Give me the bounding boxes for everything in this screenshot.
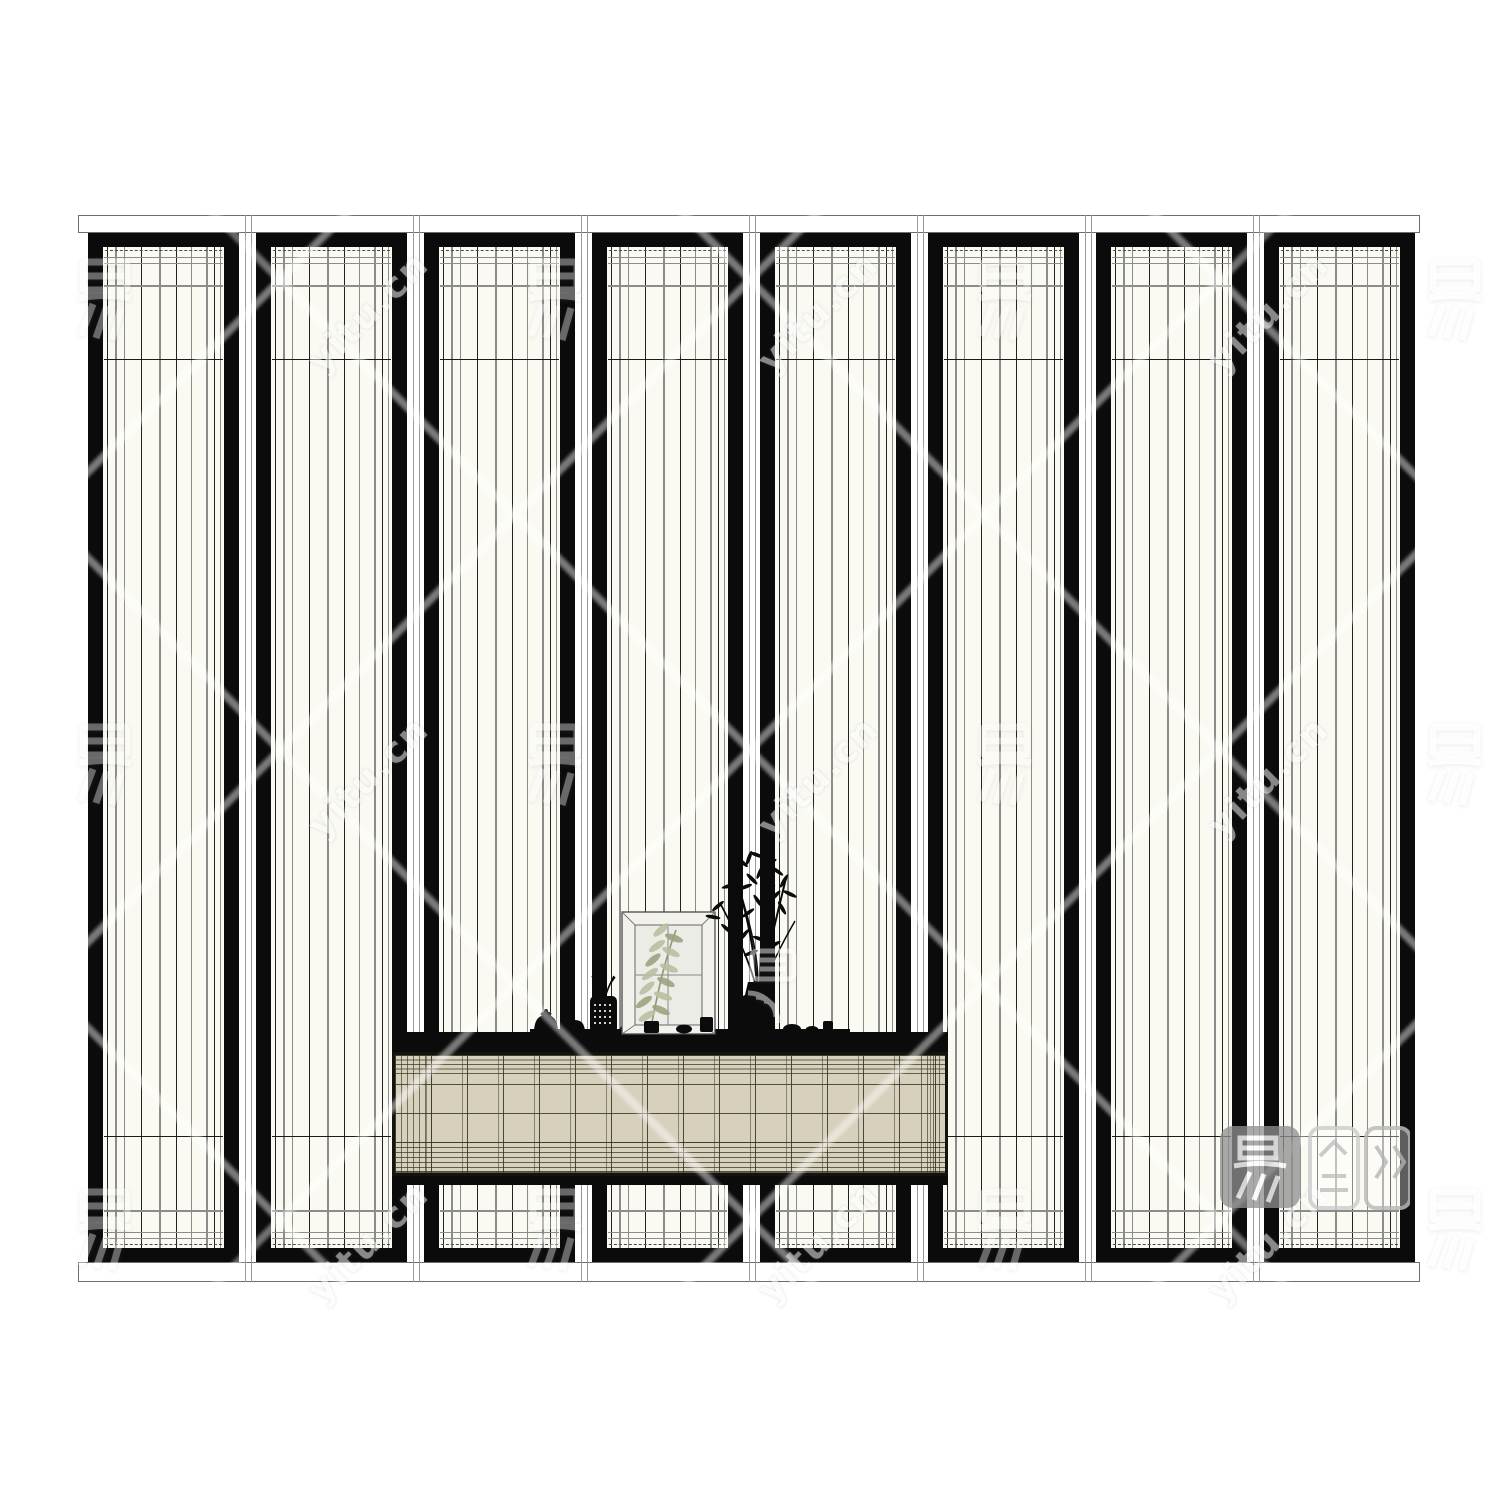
cup — [644, 1021, 659, 1033]
round-pot — [534, 1015, 558, 1033]
slat-line — [141, 247, 142, 1248]
panel-detail-line — [440, 263, 559, 264]
slat-line — [955, 247, 957, 1248]
panel-detail-line — [104, 359, 223, 360]
panel-detail-line — [272, 285, 391, 287]
grid-left-weave — [395, 1055, 437, 1173]
gap-wall-line — [251, 215, 252, 1282]
slat-line — [1123, 247, 1125, 1248]
grid-bottom-weave — [395, 1141, 945, 1173]
panel-detail-line — [272, 1238, 391, 1239]
panel-dashed-line — [777, 1244, 894, 1245]
slat-line — [1300, 247, 1301, 1248]
small-pot — [565, 1020, 585, 1033]
pot-knob — [544, 1009, 548, 1013]
panel-detail-line — [944, 257, 1063, 258]
panel-detail-line — [272, 1136, 391, 1137]
yitu-logo-watermark — [1218, 1122, 1410, 1214]
console-base-strip — [392, 1176, 948, 1185]
slat-line — [374, 247, 376, 1248]
slat-line — [981, 247, 982, 1248]
panel-detail-line — [608, 285, 727, 287]
slat-line — [1060, 247, 1061, 1248]
panel-dashed-line — [273, 1244, 390, 1245]
wall-panel — [88, 233, 239, 1262]
panel-detail-line — [944, 263, 1063, 264]
panel-detail-line — [104, 1210, 223, 1212]
panel-detail-line — [944, 1238, 1063, 1239]
small-bowl — [676, 1025, 692, 1034]
branch-vase — [705, 849, 797, 1034]
cup — [700, 1017, 713, 1032]
panel-detail-line — [608, 263, 727, 264]
panel-detail-line — [1280, 359, 1399, 360]
panel-detail-line — [104, 285, 223, 287]
tall-vase — [737, 982, 773, 1034]
panel-detail-line — [944, 1136, 1063, 1137]
panel-detail-line — [440, 257, 559, 258]
panel-dashed-line — [105, 1244, 222, 1245]
panel-dashed-line — [273, 250, 390, 251]
slat-line — [1115, 247, 1116, 1248]
panel-detail-line — [104, 1232, 223, 1233]
gap-wall-line — [245, 215, 246, 1282]
slat-line — [1184, 247, 1185, 1248]
small-bowl — [783, 1024, 801, 1034]
slat-line — [1016, 247, 1017, 1248]
dotted-vase — [590, 996, 617, 1033]
panel-detail-line — [272, 359, 391, 360]
panel-detail-line — [776, 1232, 895, 1233]
slat-line — [115, 247, 117, 1248]
slat-line — [124, 247, 125, 1248]
panel-dashed-line — [441, 250, 558, 251]
slat-line — [206, 247, 208, 1248]
logo-text: 易图网 — [0, 0, 1, 1]
slat-line — [359, 247, 360, 1248]
grid-top-weave — [395, 1055, 945, 1076]
panel-detail-line — [272, 1232, 391, 1233]
panel-recess — [943, 247, 1064, 1248]
logo-glyph-tu — [1310, 1128, 1358, 1208]
panel-detail-line — [944, 359, 1063, 360]
panel-dashed-line — [777, 250, 894, 251]
slat-line — [1046, 247, 1048, 1248]
grid-right-weave — [921, 1055, 945, 1173]
wall-panel — [256, 233, 407, 1262]
panel-detail-line — [104, 1238, 223, 1239]
slat-line — [159, 247, 161, 1248]
panel-detail-line — [104, 1136, 223, 1137]
panel-detail-line — [440, 1210, 559, 1212]
panel-detail-line — [104, 257, 223, 258]
slat-line — [1228, 247, 1229, 1248]
panel-detail-line — [1112, 1232, 1231, 1233]
panel-detail-line — [776, 285, 895, 287]
panel-recess — [103, 247, 224, 1248]
panel-detail-line — [944, 1232, 1063, 1233]
panel-detail-line — [1112, 257, 1231, 258]
panel-dashed-line — [441, 1244, 558, 1245]
panel-detail-line — [1112, 1238, 1231, 1239]
panel-recess — [1111, 247, 1232, 1248]
gap-wall-line — [1091, 215, 1092, 1282]
panel-recess — [1279, 247, 1400, 1248]
panel-dashed-line — [1113, 250, 1230, 251]
slat-line — [1283, 247, 1284, 1248]
panel-detail-line — [272, 263, 391, 264]
panel-detail-line — [608, 257, 727, 258]
panel-detail-line — [440, 285, 559, 287]
panel-detail-line — [1280, 263, 1399, 264]
panel-detail-line — [440, 1232, 559, 1233]
logo-glyph-wang — [1366, 1128, 1410, 1208]
panel-detail-line — [776, 359, 895, 360]
slat-line — [1335, 247, 1337, 1248]
panel-detail-line — [1112, 1210, 1231, 1212]
slat-line — [1317, 247, 1318, 1248]
slat-line — [1367, 247, 1368, 1248]
slat-line — [1167, 247, 1169, 1248]
slat-line — [999, 247, 1001, 1248]
slat-line — [1382, 247, 1384, 1248]
slat-line — [1352, 247, 1353, 1248]
panel-dashed-line — [945, 250, 1062, 251]
panel-detail-line — [776, 263, 895, 264]
shelf-decor — [380, 848, 960, 1048]
panel-recess — [271, 247, 392, 1248]
slat-line — [220, 247, 221, 1248]
vase-twigs — [592, 974, 615, 998]
slat-line — [388, 247, 389, 1248]
slat-line — [1149, 247, 1150, 1248]
panel-dashed-line — [1281, 1244, 1398, 1245]
console-rattan-grid — [392, 1052, 948, 1176]
panel-dashed-line — [945, 1244, 1062, 1245]
panel-dashed-line — [609, 250, 726, 251]
panel-detail-line — [272, 257, 391, 258]
panel-detail-line — [1112, 359, 1231, 360]
slat-line — [1199, 247, 1200, 1248]
panel-detail-line — [608, 1210, 727, 1212]
elevation-drawing-canvas: yitu.cn yitu.cn yitu.cn yitu.cn yitu.cn — [0, 0, 1500, 1500]
slat-line — [1031, 247, 1032, 1248]
panel-detail-line — [776, 1210, 895, 1212]
panel-detail-line — [608, 359, 727, 360]
panel-dashed-line — [1113, 1244, 1230, 1245]
slat-line — [191, 247, 192, 1248]
slat-line — [1222, 247, 1223, 1248]
panel-detail-line — [776, 1238, 895, 1239]
panel-detail-line — [1280, 257, 1399, 258]
slat-line — [382, 247, 383, 1248]
picture-frame — [622, 912, 715, 1034]
slat-line — [1054, 247, 1055, 1248]
wall-panel — [928, 233, 1079, 1262]
slat-line — [107, 247, 108, 1248]
slat-line — [1132, 247, 1133, 1248]
panel-detail-line — [1280, 1238, 1399, 1239]
yi-glyph-watermark — [1419, 256, 1491, 344]
slat-line — [1291, 247, 1293, 1248]
slat-line — [176, 247, 177, 1248]
panel-detail-line — [1280, 285, 1399, 287]
gap-wall-line — [1085, 215, 1086, 1282]
slat-line — [214, 247, 215, 1248]
slat-line — [964, 247, 965, 1248]
panel-detail-line — [440, 359, 559, 360]
panel-detail-line — [1112, 263, 1231, 264]
slat-line — [1390, 247, 1391, 1248]
slat-line — [309, 247, 310, 1248]
panel-detail-line — [1112, 285, 1231, 287]
panel-detail-line — [608, 1238, 727, 1239]
panel-dashed-line — [1281, 250, 1398, 251]
slat-line — [1396, 247, 1397, 1248]
yi-glyph-watermark — [1419, 1186, 1491, 1274]
panel-detail-line — [776, 257, 895, 258]
yi-glyph-watermark — [1419, 721, 1491, 809]
panel-detail-line — [944, 285, 1063, 287]
slat-line — [344, 247, 345, 1248]
wall-panel — [1264, 233, 1415, 1262]
panel-detail-line — [104, 263, 223, 264]
slat-line — [292, 247, 293, 1248]
slat-line — [283, 247, 285, 1248]
slat-line — [1214, 247, 1216, 1248]
slat-line — [327, 247, 329, 1248]
cup — [823, 1021, 833, 1032]
panel-detail-line — [1280, 1232, 1399, 1233]
wall-panel — [1096, 233, 1247, 1262]
panel-detail-line — [272, 1210, 391, 1212]
panel-detail-line — [1112, 1136, 1231, 1137]
panel-dashed-line — [609, 1244, 726, 1245]
small-bowl — [806, 1026, 819, 1034]
panel-detail-line — [944, 1210, 1063, 1212]
panel-detail-line — [440, 1238, 559, 1239]
panel-dashed-line — [105, 250, 222, 251]
slat-line — [275, 247, 276, 1248]
panel-detail-line — [608, 1232, 727, 1233]
